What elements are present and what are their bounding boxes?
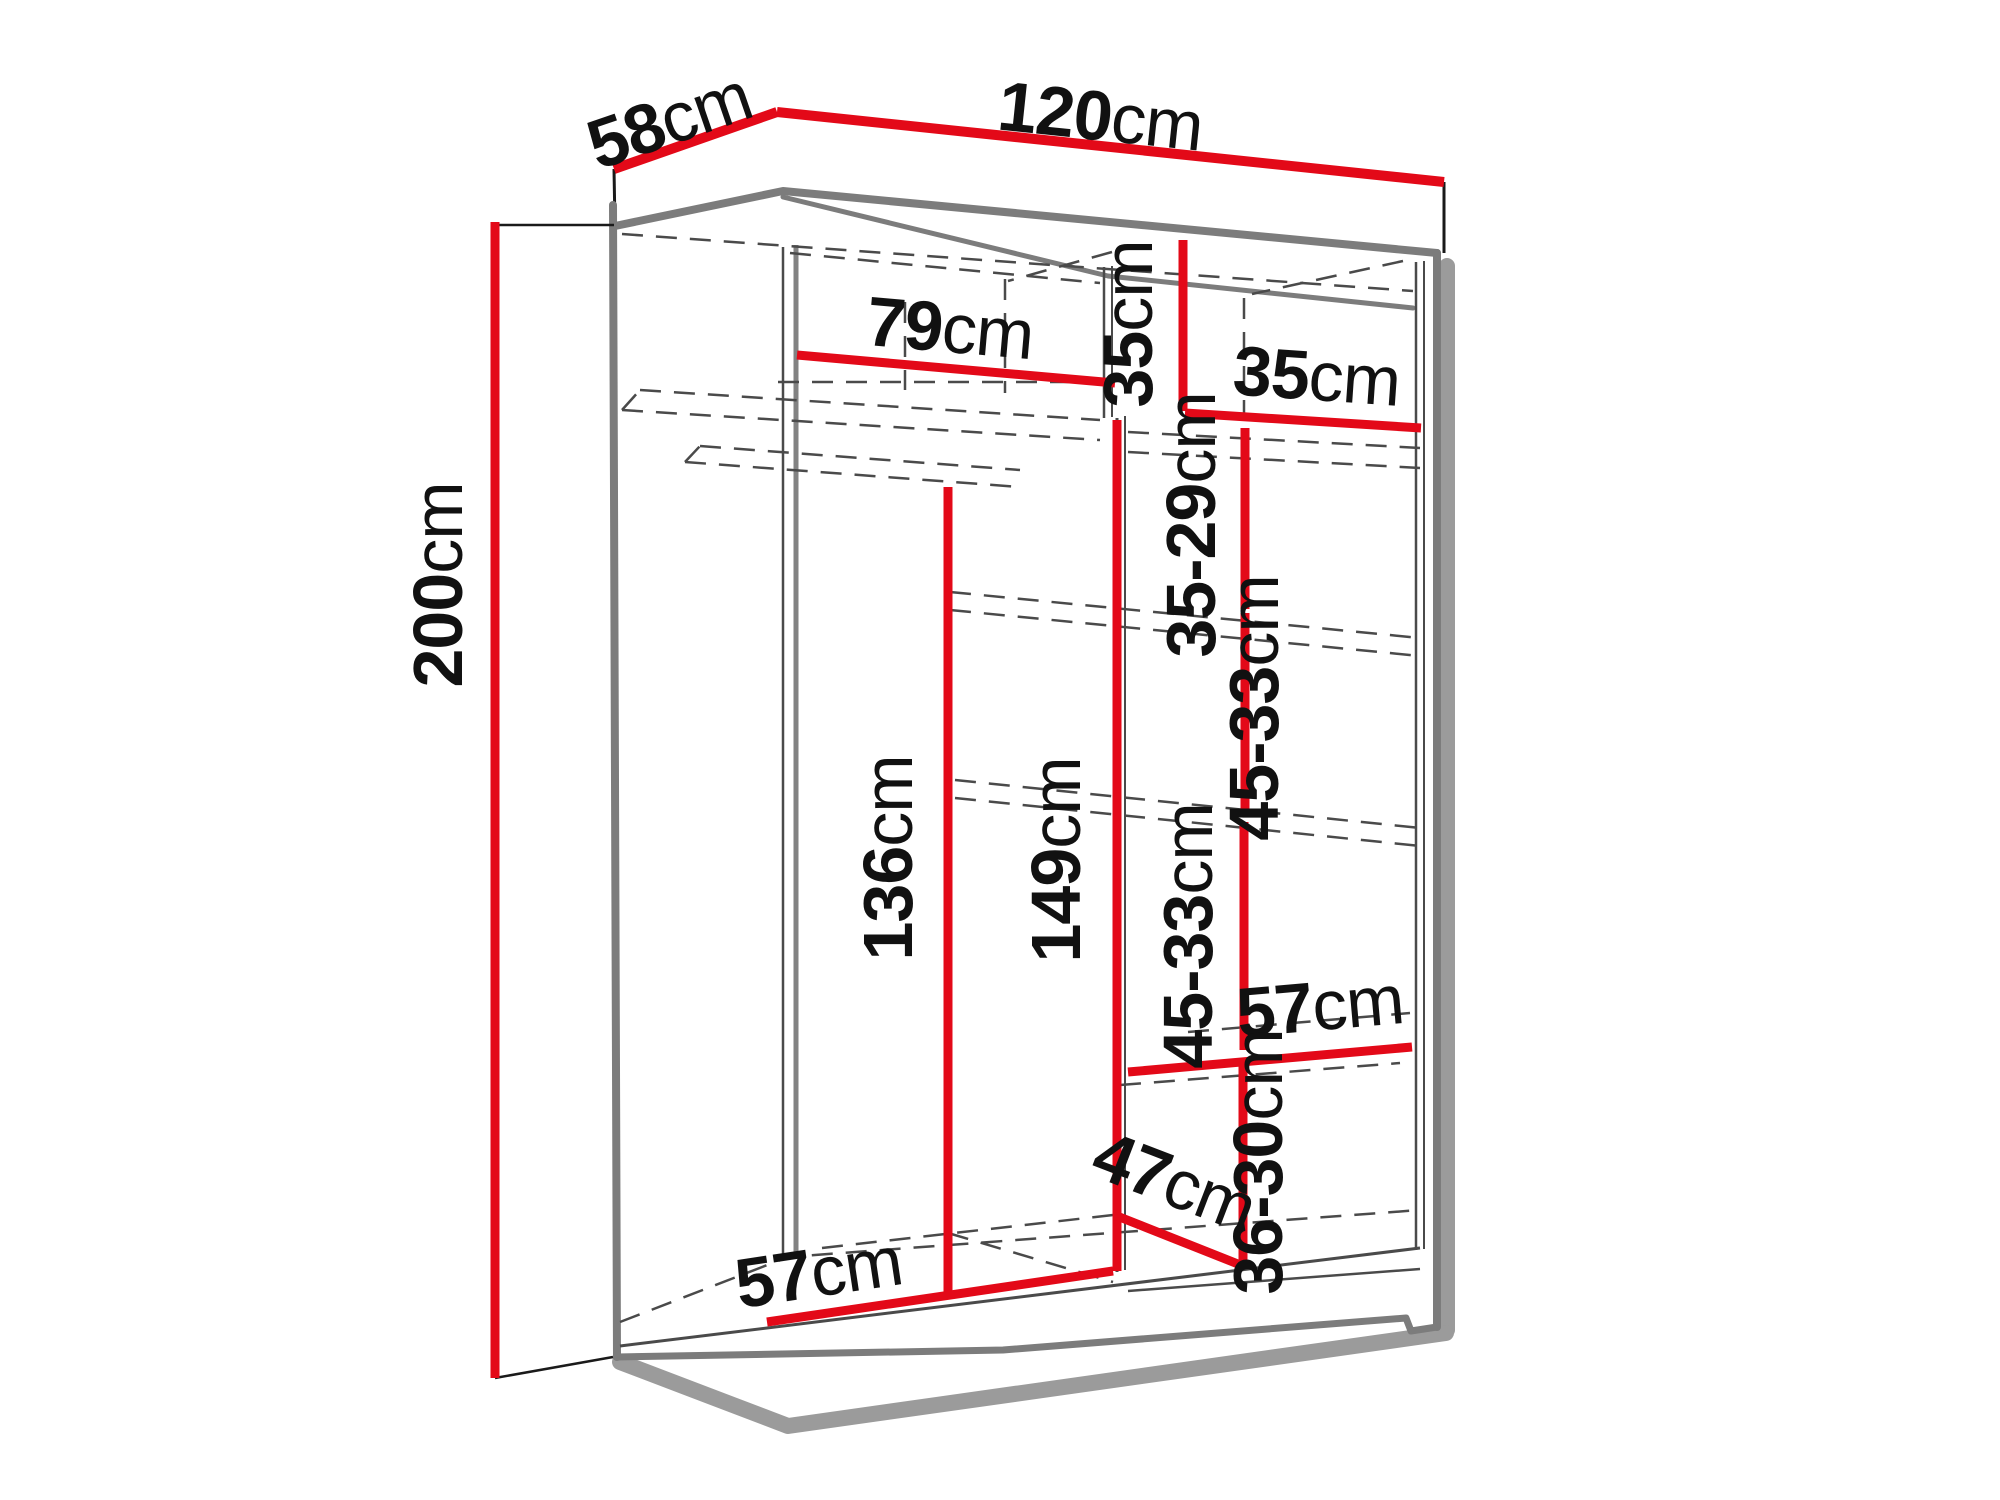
- hanging-rail-end-cap: [622, 390, 640, 410]
- dim-label-45-33-lower: 45-33cm: [1149, 803, 1227, 1068]
- dim-label-45-33-upper: 45-33cm: [1215, 575, 1293, 840]
- wardrobe-dimension-diagram: 58cm 120cm 200cm 79cm 35cm 35cm 35-29cm …: [0, 0, 2000, 1500]
- dim-label-35-horizontal: 35cm: [1231, 331, 1403, 420]
- dim-label-35-vertical: 35cm: [1089, 240, 1167, 407]
- dim-label-height-200: 200cm: [399, 482, 477, 687]
- diagram-page: 58cm 120cm 200cm 79cm 35cm 35cm 35-29cm …: [0, 0, 2000, 1500]
- dim-label-149: 149cm: [1017, 757, 1095, 962]
- dimension-labels-group: 58cm 120cm 200cm 79cm 35cm 35cm 35-29cm …: [399, 56, 1407, 1323]
- hanging-rail2-end-cap: [685, 446, 700, 462]
- hanging-rail2-top-line: [700, 446, 1020, 470]
- hanging-rail2-bottom-line: [685, 462, 1020, 487]
- dim-label-79: 79cm: [863, 282, 1036, 374]
- dimension-ticks-group: [495, 225, 614, 1378]
- carcass-left-edge: [613, 205, 617, 1357]
- height-tick-bottom: [495, 1357, 613, 1378]
- dim-label-136: 136cm: [849, 755, 927, 960]
